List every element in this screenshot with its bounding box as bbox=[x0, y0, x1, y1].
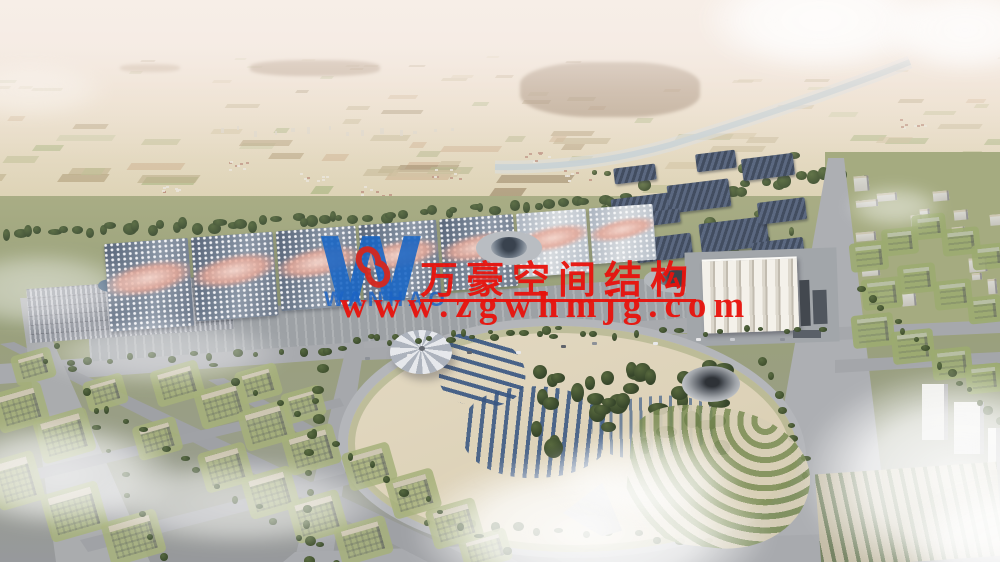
tree bbox=[168, 356, 176, 362]
tree bbox=[523, 202, 530, 212]
distant-skyline-speck bbox=[380, 128, 384, 134]
village-speck bbox=[370, 189, 373, 191]
field-patch bbox=[310, 186, 334, 194]
tree bbox=[362, 215, 373, 222]
field-patch bbox=[239, 140, 293, 146]
village-speck bbox=[435, 169, 438, 171]
tree bbox=[213, 219, 227, 225]
expo-hall-module bbox=[358, 220, 441, 302]
tree bbox=[508, 330, 513, 335]
tree bbox=[43, 359, 48, 364]
distant-skyline-speck bbox=[275, 131, 277, 135]
tree bbox=[305, 536, 315, 546]
village-speck bbox=[434, 176, 437, 178]
car bbox=[592, 342, 597, 345]
pink-membrane-ridge bbox=[276, 238, 362, 287]
annex-building-1 bbox=[799, 280, 811, 326]
village-speck bbox=[166, 186, 169, 188]
circus-tent-pavilion bbox=[390, 330, 452, 374]
village-speck bbox=[459, 178, 462, 180]
tree bbox=[387, 340, 392, 346]
tree bbox=[717, 329, 724, 333]
distant-skyline-speck bbox=[254, 131, 257, 137]
field-patch bbox=[973, 104, 988, 108]
tree bbox=[131, 220, 139, 232]
tree bbox=[348, 453, 353, 461]
tree bbox=[900, 328, 905, 335]
village-speck bbox=[300, 173, 303, 175]
building bbox=[933, 190, 950, 201]
village-speck bbox=[376, 191, 379, 193]
distant-skyline-speck bbox=[346, 132, 350, 136]
tree bbox=[740, 180, 749, 187]
tree bbox=[304, 556, 315, 562]
village-speck bbox=[322, 176, 325, 178]
tree bbox=[895, 319, 903, 324]
field-patch bbox=[225, 104, 260, 108]
village-speck bbox=[589, 179, 592, 181]
field-patch bbox=[388, 95, 418, 99]
field-patch bbox=[141, 139, 181, 145]
car bbox=[780, 338, 785, 341]
village-speck bbox=[924, 125, 927, 127]
tree bbox=[469, 335, 474, 340]
village-speck bbox=[917, 125, 920, 127]
building bbox=[972, 272, 983, 280]
tree bbox=[86, 228, 94, 238]
building bbox=[917, 217, 941, 235]
tree bbox=[551, 373, 565, 384]
tree bbox=[659, 327, 667, 333]
village-speck bbox=[163, 187, 166, 189]
field-patch bbox=[127, 163, 186, 170]
tree bbox=[513, 522, 524, 532]
pink-membrane-ridge bbox=[358, 232, 441, 279]
expo-hall-module bbox=[276, 226, 362, 312]
tree bbox=[83, 388, 91, 396]
building bbox=[971, 367, 997, 389]
field-patch bbox=[408, 65, 425, 67]
tree bbox=[398, 210, 408, 219]
tower-building bbox=[922, 384, 948, 440]
village-speck bbox=[237, 165, 240, 167]
tree bbox=[819, 327, 828, 331]
tree bbox=[148, 352, 156, 357]
expo-hall-module bbox=[589, 204, 657, 265]
village-speck bbox=[538, 152, 541, 154]
distant-skyline-speck bbox=[291, 128, 295, 132]
tree bbox=[332, 441, 340, 447]
tree bbox=[784, 329, 790, 334]
expo-hall-module bbox=[104, 238, 194, 332]
tree bbox=[543, 199, 555, 209]
tree bbox=[33, 226, 42, 234]
tree bbox=[181, 456, 190, 461]
tree bbox=[313, 414, 325, 424]
car bbox=[407, 354, 412, 357]
tree bbox=[296, 535, 302, 541]
field-patch bbox=[965, 99, 986, 103]
tree bbox=[489, 206, 501, 215]
village-speck bbox=[178, 189, 181, 191]
tree bbox=[983, 406, 992, 414]
field-patch bbox=[72, 124, 109, 129]
tree bbox=[59, 226, 68, 233]
building bbox=[903, 267, 931, 290]
field-patch bbox=[416, 151, 441, 157]
tree bbox=[231, 378, 239, 386]
village-speck bbox=[564, 170, 567, 172]
tree bbox=[253, 390, 258, 396]
tree bbox=[510, 200, 520, 211]
tree bbox=[535, 203, 542, 210]
tree bbox=[967, 387, 972, 392]
tree bbox=[869, 295, 877, 303]
car bbox=[696, 338, 701, 341]
tree bbox=[744, 325, 750, 332]
village-speck bbox=[901, 126, 904, 128]
pink-membrane-ridge bbox=[104, 252, 194, 305]
tree bbox=[592, 170, 597, 174]
village-speck bbox=[454, 173, 457, 175]
tree bbox=[674, 328, 684, 333]
tree bbox=[307, 431, 316, 439]
field-patch bbox=[380, 110, 424, 114]
village-speck bbox=[229, 169, 232, 171]
tree bbox=[234, 219, 247, 229]
tree bbox=[374, 334, 381, 340]
field-patch bbox=[0, 80, 17, 83]
central-dome bbox=[491, 237, 527, 258]
tree bbox=[437, 510, 443, 514]
village-speck bbox=[535, 160, 538, 162]
field-patch bbox=[295, 90, 310, 93]
tree bbox=[653, 537, 661, 545]
village-speck bbox=[900, 119, 903, 121]
tree bbox=[317, 364, 329, 374]
field-patch bbox=[31, 88, 63, 91]
tree bbox=[233, 349, 243, 357]
village-speck bbox=[903, 127, 906, 129]
distant-skyline-speck bbox=[237, 126, 239, 130]
car bbox=[467, 351, 472, 354]
building bbox=[987, 278, 997, 294]
tree bbox=[503, 547, 511, 555]
tree bbox=[190, 351, 198, 356]
village-speck bbox=[317, 180, 320, 182]
village-speck bbox=[576, 172, 579, 174]
tree bbox=[385, 212, 396, 219]
tree bbox=[635, 530, 643, 536]
village-speck bbox=[436, 176, 439, 178]
village-speck bbox=[571, 173, 574, 175]
car bbox=[365, 357, 370, 360]
tree bbox=[156, 220, 165, 229]
distant-skyline-speck bbox=[221, 128, 225, 134]
tree bbox=[3, 229, 11, 241]
tree bbox=[124, 493, 130, 497]
village-speck bbox=[450, 177, 453, 179]
expo-hall-module bbox=[191, 232, 279, 322]
pink-membrane-ridge bbox=[589, 212, 657, 248]
field-patch bbox=[345, 106, 369, 110]
tree bbox=[300, 348, 309, 356]
tree bbox=[490, 334, 499, 341]
distant-skyline-speck bbox=[434, 129, 437, 133]
dark-field bbox=[250, 60, 380, 76]
field-patch bbox=[320, 76, 334, 79]
field-patch bbox=[140, 60, 156, 62]
tree bbox=[277, 400, 284, 406]
village-speck bbox=[450, 169, 453, 171]
tree bbox=[768, 372, 774, 380]
tree bbox=[323, 348, 332, 354]
tree bbox=[139, 427, 147, 432]
village-speck bbox=[306, 180, 309, 182]
distant-skyline-speck bbox=[307, 127, 310, 134]
tree bbox=[775, 391, 784, 398]
tree bbox=[68, 366, 77, 372]
field-patch bbox=[18, 86, 33, 89]
distant-skyline-speck bbox=[413, 131, 417, 134]
tree bbox=[601, 371, 614, 385]
field-patch bbox=[370, 135, 411, 141]
tree bbox=[383, 476, 390, 483]
tree bbox=[312, 386, 324, 395]
tree bbox=[977, 400, 983, 406]
distant-skyline-speck bbox=[329, 126, 332, 130]
village-speck bbox=[243, 168, 246, 170]
tree bbox=[214, 484, 220, 489]
building bbox=[954, 210, 969, 221]
village-speck bbox=[246, 162, 249, 164]
tree bbox=[703, 332, 708, 337]
field-patch bbox=[984, 139, 1000, 145]
tree bbox=[83, 357, 92, 365]
field-patch bbox=[3, 156, 40, 163]
tree bbox=[612, 333, 617, 341]
field-patch bbox=[56, 135, 116, 141]
dark-field bbox=[120, 64, 180, 72]
village-speck bbox=[905, 124, 908, 126]
car bbox=[516, 351, 521, 354]
tree bbox=[192, 467, 200, 473]
aerial-rendering-scene: W WANHAO 万豪空间结构 www.zgwhmjg.com bbox=[0, 0, 1000, 562]
tree bbox=[457, 523, 464, 531]
building bbox=[855, 245, 883, 268]
tree bbox=[571, 383, 584, 402]
crater-pavilion bbox=[682, 366, 740, 402]
field-patch bbox=[7, 116, 25, 121]
field-patch bbox=[212, 80, 232, 83]
building bbox=[857, 316, 889, 343]
pink-membrane-ridge bbox=[191, 245, 279, 296]
field-patch bbox=[409, 142, 428, 148]
tree bbox=[533, 365, 547, 379]
tree bbox=[877, 305, 884, 311]
tree bbox=[259, 215, 267, 225]
tree bbox=[921, 345, 930, 351]
tree bbox=[531, 421, 542, 437]
village-speck bbox=[921, 124, 924, 126]
tree bbox=[758, 357, 767, 366]
tree bbox=[162, 446, 171, 452]
tree bbox=[269, 518, 278, 525]
village-speck bbox=[548, 156, 551, 158]
tree bbox=[304, 449, 314, 456]
tree bbox=[602, 398, 616, 406]
tree bbox=[307, 489, 314, 496]
field-patch bbox=[268, 153, 305, 159]
distant-skyline-speck bbox=[361, 130, 364, 136]
car bbox=[653, 342, 658, 345]
tree bbox=[92, 425, 101, 429]
building bbox=[887, 231, 913, 251]
tree bbox=[399, 489, 408, 497]
tower-building bbox=[954, 402, 984, 454]
tree bbox=[996, 417, 1000, 425]
tree bbox=[147, 534, 153, 540]
field-patch bbox=[0, 86, 11, 89]
field-patch bbox=[489, 188, 527, 196]
tree bbox=[446, 337, 455, 343]
tree bbox=[778, 407, 787, 414]
building bbox=[939, 283, 967, 306]
tree bbox=[948, 369, 957, 377]
tree bbox=[426, 496, 431, 502]
village-speck bbox=[230, 161, 233, 163]
village-speck bbox=[364, 186, 367, 188]
tree bbox=[449, 207, 456, 213]
tree bbox=[623, 383, 639, 394]
tree bbox=[127, 353, 133, 361]
tree bbox=[232, 496, 238, 504]
annex-building-2 bbox=[812, 290, 827, 324]
field-patch bbox=[0, 174, 7, 181]
car bbox=[730, 338, 735, 341]
field-patch bbox=[342, 119, 361, 124]
tree bbox=[555, 326, 562, 330]
tree bbox=[104, 222, 116, 229]
car bbox=[561, 345, 566, 348]
tree bbox=[543, 397, 559, 409]
village-speck bbox=[162, 190, 165, 192]
village-speck bbox=[322, 179, 325, 181]
tree bbox=[542, 326, 551, 334]
village-speck bbox=[307, 177, 310, 179]
village-speck bbox=[361, 191, 364, 193]
orchard-rows bbox=[815, 462, 1000, 562]
village-speck bbox=[568, 180, 571, 182]
village-speck bbox=[326, 176, 329, 178]
village-speck bbox=[525, 156, 528, 158]
tree bbox=[192, 223, 203, 235]
village-speck bbox=[529, 153, 532, 155]
tree bbox=[451, 330, 456, 337]
tree bbox=[107, 359, 113, 364]
tree bbox=[72, 226, 83, 233]
field-patch bbox=[321, 154, 348, 161]
east-vaulted-hall bbox=[702, 256, 800, 333]
tree bbox=[577, 198, 588, 205]
field-patch bbox=[234, 58, 246, 60]
tree bbox=[122, 472, 130, 477]
tree bbox=[94, 408, 100, 414]
building bbox=[973, 299, 997, 319]
tree bbox=[616, 393, 630, 408]
building bbox=[977, 247, 1000, 265]
tree bbox=[294, 411, 300, 417]
building bbox=[853, 175, 869, 191]
field-patch bbox=[32, 145, 64, 151]
building bbox=[990, 213, 1000, 226]
distant-skyline-speck bbox=[400, 130, 403, 135]
field-patch bbox=[138, 175, 202, 183]
tree bbox=[788, 423, 795, 428]
field-patch bbox=[57, 174, 109, 182]
tree bbox=[461, 329, 466, 336]
tree bbox=[427, 205, 437, 215]
village-speck bbox=[565, 175, 568, 177]
